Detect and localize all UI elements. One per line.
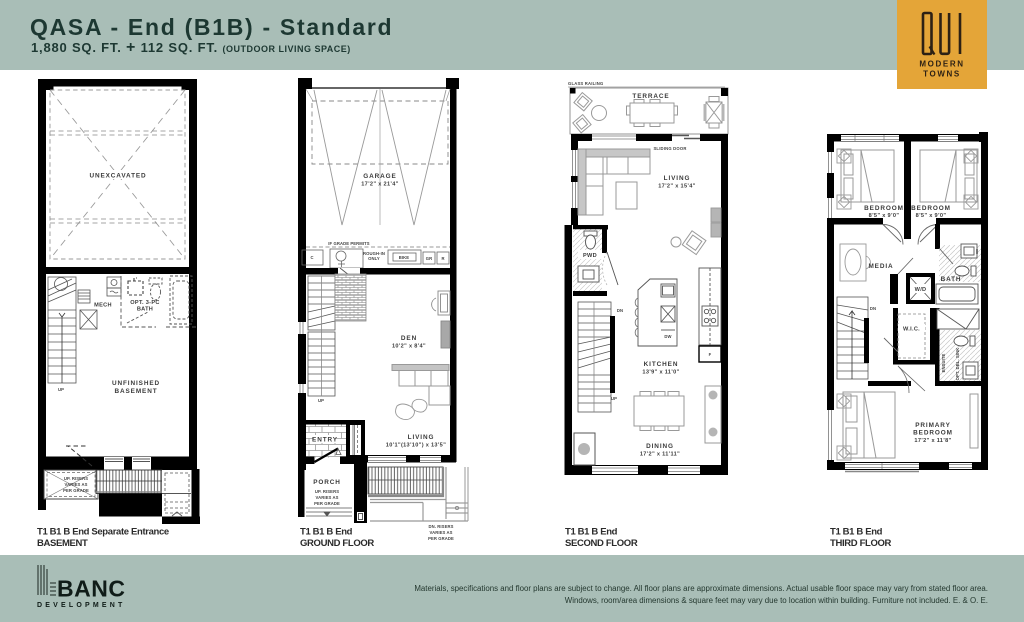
svg-text:LIVING: LIVING [664, 175, 691, 182]
svg-text:LIVING: LIVING [408, 434, 435, 441]
svg-text:KITCHEN: KITCHEN [644, 361, 679, 368]
svg-text:GR: GR [426, 256, 432, 261]
svg-text:MEDIA: MEDIA [868, 263, 893, 270]
svg-text:DEN: DEN [401, 335, 417, 342]
svg-text:UNFINISHED: UNFINISHED [112, 380, 160, 387]
svg-text:GLASS RAILING: GLASS RAILING [568, 81, 603, 86]
svg-text:R: R [441, 256, 444, 261]
svg-text:PER GRADE: PER GRADE [428, 536, 454, 541]
svg-text:VARIES AS: VARIES AS [64, 482, 87, 487]
svg-text:MODERN: MODERN [919, 60, 964, 69]
svg-text:F: F [709, 352, 712, 357]
svg-text:SECOND FLOOR: SECOND FLOOR [565, 538, 638, 549]
svg-text:BEDROOM: BEDROOM [864, 205, 904, 212]
svg-text:T1 B1 B End: T1 B1 B End [830, 527, 883, 538]
svg-text:BASEMENT: BASEMENT [37, 538, 88, 549]
svg-text:PER GRADE: PER GRADE [63, 488, 89, 493]
svg-text:UP. RISERS: UP. RISERS [64, 476, 88, 481]
svg-text:UP: UP [611, 396, 617, 401]
svg-text:MECH: MECH [94, 303, 112, 309]
svg-text:T1 B1 B End: T1 B1 B End [300, 527, 353, 538]
svg-text:DN: DN [617, 308, 623, 313]
svg-text:TOWNS: TOWNS [923, 70, 961, 79]
svg-text:C: C [310, 255, 313, 260]
svg-text:GROUND FLOOR: GROUND FLOOR [300, 538, 374, 549]
svg-text:17’2” x 11’11”: 17’2” x 11’11” [640, 452, 680, 458]
svg-text:OPT. DBL. SINK: OPT. DBL. SINK [955, 348, 960, 381]
svg-text:W/D: W/D [915, 287, 927, 293]
svg-text:W.I.C.: W.I.C. [903, 327, 920, 333]
svg-text:10’2” x 8’4”: 10’2” x 8’4” [392, 344, 426, 350]
svg-text:UP. RISERS: UP. RISERS [315, 489, 339, 494]
svg-text:TERRACE: TERRACE [632, 93, 669, 100]
svg-text:T1 B1 B End: T1 B1 B End [565, 527, 618, 538]
svg-text:OPT. 3-PC: OPT. 3-PC [130, 300, 159, 306]
svg-text:BIKE: BIKE [399, 255, 410, 260]
svg-text:PER GRADE: PER GRADE [314, 501, 340, 506]
svg-text:10’1”(13’10”) x 13’5”: 10’1”(13’10”) x 13’5” [386, 443, 446, 449]
svg-text:17’2” x 15’4”: 17’2” x 15’4” [658, 184, 696, 190]
svg-text:VARIES AS: VARIES AS [429, 530, 452, 535]
svg-text:BEDROOM: BEDROOM [911, 205, 951, 212]
svg-text:PRIMARY: PRIMARY [915, 422, 951, 429]
svg-text:DW: DW [664, 334, 671, 339]
svg-text:17’2” x 11’8”: 17’2” x 11’8” [914, 438, 951, 444]
svg-text:UNEXCAVATED: UNEXCAVATED [89, 173, 146, 180]
svg-text:THIRD FLOOR: THIRD FLOOR [830, 538, 892, 549]
svg-text:17’2” x 21’4”: 17’2” x 21’4” [361, 182, 399, 188]
svg-text:UP: UP [318, 398, 324, 403]
svg-text:BATH: BATH [137, 307, 153, 313]
svg-text:BATH: BATH [941, 276, 962, 283]
svg-text:13’9” x 11’0”: 13’9” x 11’0” [642, 370, 679, 376]
svg-text:DN. RISERS: DN. RISERS [429, 524, 454, 529]
svg-text:GARAGE: GARAGE [363, 173, 396, 180]
svg-text:BASEMENT: BASEMENT [114, 388, 157, 395]
svg-text:SLIDING DOOR: SLIDING DOOR [653, 146, 686, 151]
svg-text:ONLY: ONLY [368, 256, 380, 261]
svg-text:PWD: PWD [583, 253, 597, 259]
svg-text:ENTRY: ENTRY [312, 437, 338, 444]
svg-text:DINING: DINING [646, 443, 674, 450]
svg-text:T1 B1 B End Separate Entrance: T1 B1 B End Separate Entrance [37, 527, 169, 538]
svg-text:ENSUITE: ENSUITE [941, 353, 946, 372]
svg-text:IF GRADE PERMITS: IF GRADE PERMITS [328, 241, 369, 246]
svg-text:VARIES AS: VARIES AS [315, 495, 338, 500]
svg-text:BEDROOM: BEDROOM [913, 430, 953, 437]
svg-text:UP: UP [58, 387, 64, 392]
svg-text:DN: DN [870, 306, 876, 311]
svg-text:PORCH: PORCH [313, 479, 341, 486]
